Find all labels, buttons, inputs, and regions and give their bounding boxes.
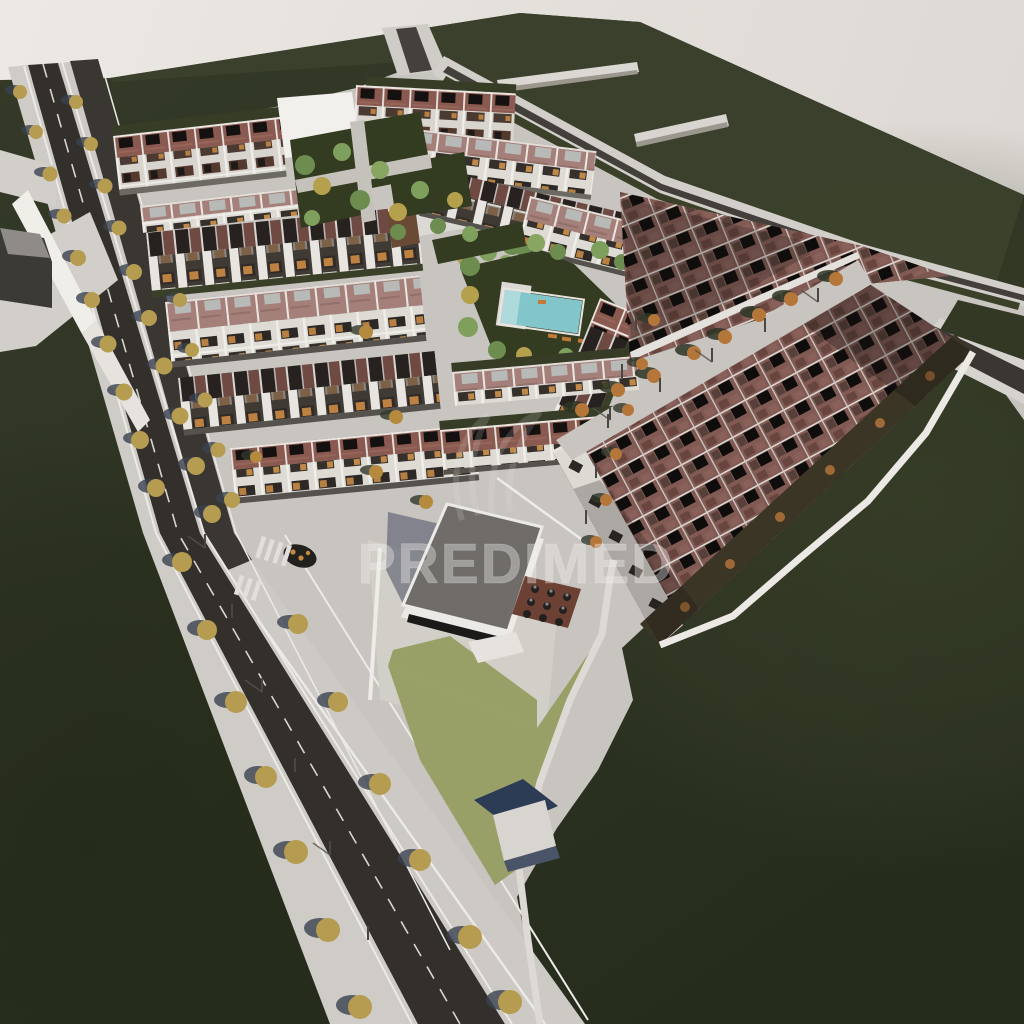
svg-text:PREDIMED: PREDIMED bbox=[358, 532, 675, 596]
